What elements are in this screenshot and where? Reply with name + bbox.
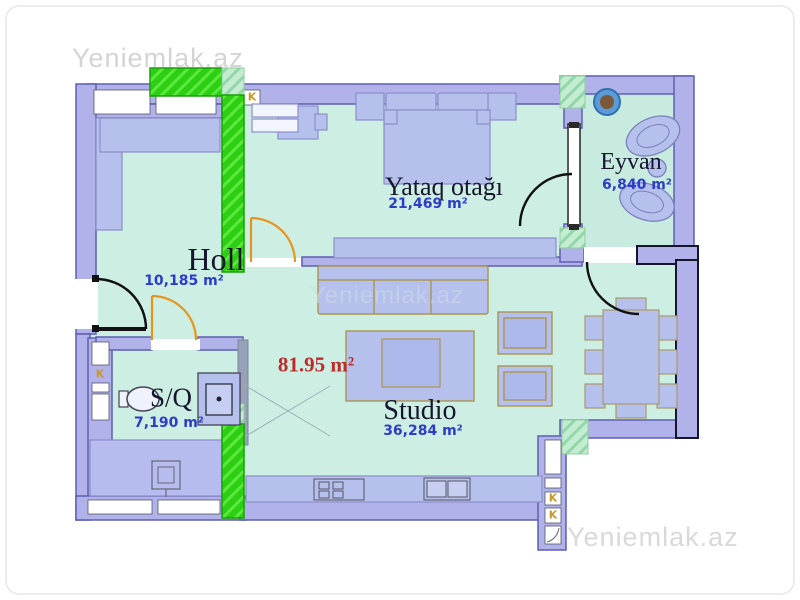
opening-bedroom <box>246 258 301 267</box>
closet-door-2 <box>252 119 298 132</box>
kitchen <box>246 476 542 502</box>
room-area-holl: 10,185 m² <box>144 274 224 288</box>
dresser-mirror <box>315 114 327 130</box>
dining-table <box>603 310 659 404</box>
watermark-bottom-right: Yeniemlak.az <box>567 524 739 551</box>
sink-basin-2 <box>448 481 467 497</box>
window-bottom-2 <box>158 500 220 514</box>
niche-br-1 <box>545 440 561 474</box>
nightstand-left <box>356 93 384 120</box>
opening-dining <box>584 247 636 263</box>
shaft-bottom-right <box>562 420 588 454</box>
total-area-label: 81.95 m² <box>278 355 354 376</box>
storage-area <box>90 440 222 496</box>
shower-drain <box>217 397 222 402</box>
chair-left-1 <box>585 316 605 340</box>
wardrobe-top <box>100 118 220 152</box>
window-top-1 <box>94 90 150 114</box>
shaft-label-top: K <box>248 92 257 103</box>
chair-right-1 <box>657 316 677 340</box>
room-area-studio: 36,284 m² <box>383 424 463 438</box>
armchair-1-seat <box>504 318 546 348</box>
coffee-table <box>382 339 440 387</box>
chair-right-3 <box>657 384 677 408</box>
pillow-right <box>438 93 488 110</box>
sink-basin-1 <box>427 481 446 497</box>
room-label-holl: Holl <box>188 243 245 275</box>
shaft-label-bottom-right-1: K <box>549 493 558 504</box>
room-label-sq: S/Q <box>150 385 192 412</box>
watermark-center: Yeniemlak.az <box>310 284 464 308</box>
shaft-label-left: K <box>96 369 105 380</box>
room-area-sq: 7,190 m² <box>134 416 204 430</box>
wall-eyvan-right <box>674 76 694 262</box>
room-area-eyvan: 6,840 m² <box>602 178 672 192</box>
tv-cabinet <box>334 238 556 258</box>
watermark-top-left: Yeniemlak.az <box>72 45 244 72</box>
chair-left-3 <box>585 384 605 408</box>
plant-soil <box>600 95 614 109</box>
chair-right-2 <box>657 350 677 374</box>
window-bottom-1 <box>88 500 152 514</box>
room-area-yataq: 21,469 m² <box>388 197 468 211</box>
shaft-label-bottom-right-2: K <box>549 510 558 521</box>
wall-dining-right <box>676 260 698 438</box>
niche-left-1 <box>92 342 109 365</box>
niche-br-2 <box>545 478 561 488</box>
floorplan-page: Yeniemlak.az Yeniemlak.az Yeniemlak.az Y… <box>0 0 800 600</box>
opening-sq <box>151 339 200 350</box>
niche-left-3 <box>92 394 109 420</box>
opening-entrance <box>74 279 98 329</box>
dining-set <box>585 298 677 418</box>
shaft-vertical-lower <box>222 424 244 518</box>
chair-left-2 <box>585 350 605 374</box>
nightstand-right <box>488 93 516 120</box>
shaft-eyvan-top <box>560 76 585 108</box>
armchair-2-seat <box>504 372 546 400</box>
shaft-eyvan-bottom <box>560 228 585 248</box>
pillow-left <box>386 93 436 110</box>
room-label-eyvan: Eyvan <box>600 150 661 174</box>
wall-sq-top-right <box>198 337 243 350</box>
room-label-studio: Studio <box>383 397 456 425</box>
niche-left-2 <box>92 383 109 392</box>
closet-door-1 <box>252 104 298 117</box>
kitchen-counter <box>246 476 542 502</box>
